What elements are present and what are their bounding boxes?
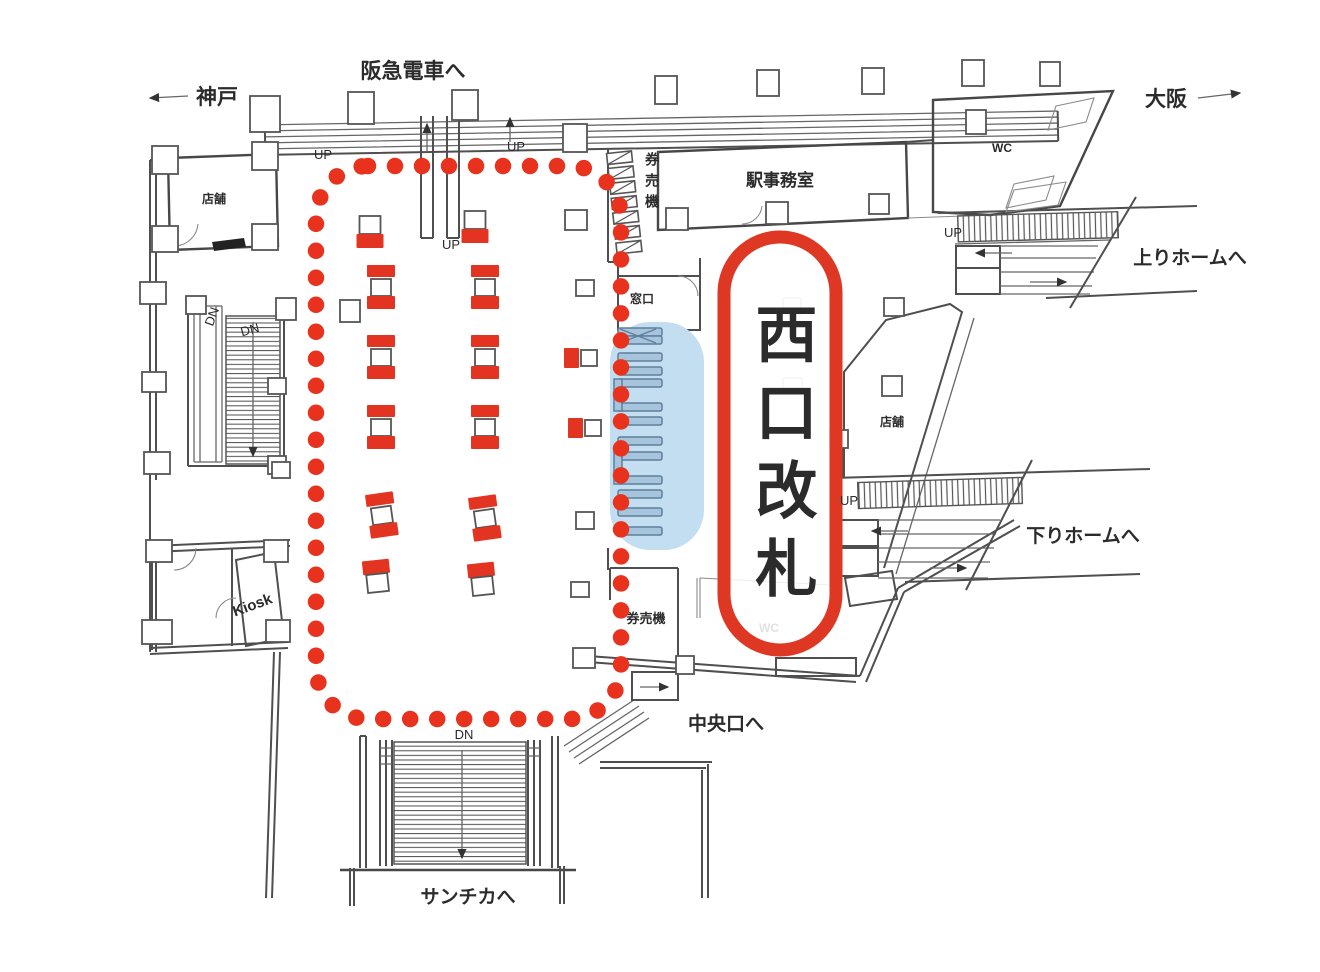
- wall-pillar: [862, 68, 884, 94]
- wall-pillar: [140, 282, 166, 304]
- station-office-label: 駅事務室: [745, 170, 814, 190]
- pillar-markers: [357, 211, 602, 596]
- red-pillar-marker: [471, 265, 499, 309]
- red-pillar-marker: [471, 405, 499, 449]
- red-pillar-marker: [367, 335, 395, 379]
- to-up-platform-label: 上りホームへ: [1133, 247, 1246, 269]
- ticket-machines-lower-label: 券売機: [625, 611, 665, 626]
- wall-pillar: [152, 226, 178, 252]
- direction-label: UP: [314, 147, 332, 162]
- up-platform-stairs: [938, 182, 1197, 308]
- shop-upper-left-label: 店舗: [202, 191, 226, 206]
- gate-bar: [618, 353, 662, 361]
- wall-pillar: [146, 540, 172, 562]
- red-pillar-marker: [362, 559, 392, 594]
- station-office-room: [658, 140, 990, 230]
- wall-pillar: [252, 224, 278, 250]
- red-pillar-marker: [468, 494, 502, 541]
- wall-pillar: [757, 70, 779, 96]
- direction-label: UP: [944, 225, 962, 240]
- to-central-exit-label: 中央口へ: [688, 712, 764, 735]
- west-gate-label: 西口改札: [746, 302, 818, 614]
- wall-pillar: [250, 96, 280, 132]
- wall-pillar: [573, 648, 595, 668]
- wall-pillar: [655, 76, 677, 104]
- direction-label: DN: [455, 727, 474, 742]
- floor-plan-svg: WC: [0, 0, 1320, 972]
- wall-pillar: [563, 124, 587, 152]
- wall-pillar: [966, 110, 986, 134]
- osaka-arrow-icon: [1198, 93, 1240, 98]
- wall-pillar: [340, 300, 360, 322]
- wall-pillar: [268, 378, 286, 394]
- santica-stairs: [340, 700, 712, 906]
- shop-door-mark: [212, 238, 246, 251]
- wall-pillar: [576, 512, 594, 529]
- shop-right-label: 店舗: [880, 414, 904, 429]
- upper-wc-room: [933, 91, 1113, 215]
- wall-pillar: [348, 92, 374, 124]
- wc-upper-label: WC: [992, 141, 1012, 155]
- west-gate-highlight: 西口改札: [724, 237, 836, 650]
- hankyu-corridor: [265, 111, 1058, 155]
- wall-pillar: [1040, 62, 1060, 86]
- kobe-arrow-icon: [150, 96, 188, 98]
- ticket-machines-top-label: 券売機: [644, 151, 660, 215]
- red-pillar-marker: [467, 562, 497, 597]
- direction-label: UP: [442, 237, 460, 252]
- red-pillar-marker: [357, 216, 384, 248]
- kobe-label: 神戸: [196, 85, 238, 109]
- wall-pillar: [666, 208, 688, 230]
- southwest-wall: [266, 652, 280, 898]
- wall-pillar: [144, 452, 170, 474]
- red-pillar-marker: [367, 405, 395, 449]
- wall-pillar: [142, 372, 166, 392]
- wall-pillar: [571, 582, 589, 597]
- wall-pillar: [452, 90, 478, 120]
- wall-pillar: [962, 60, 984, 86]
- to-down-platform-label: 下りホームへ: [1026, 526, 1139, 547]
- wall-pillar: [266, 620, 290, 642]
- red-pillar-marker: [365, 491, 399, 538]
- wall-pillar: [576, 280, 594, 296]
- dotted-highlight-region: [316, 166, 621, 719]
- wall-pillar: [676, 656, 694, 674]
- wall-pillar: [186, 296, 206, 314]
- wall-pillar: [272, 462, 290, 478]
- to-hankyu-label: 阪急電車へ: [361, 59, 466, 83]
- wall-pillar: [882, 376, 902, 396]
- down-platform-stairs: [832, 440, 1150, 590]
- gate-bar: [618, 379, 662, 387]
- ticket-gate-zone: [610, 322, 704, 550]
- wall-pillar: [152, 146, 178, 174]
- wall-pillar: [264, 540, 288, 562]
- direction-label: UP: [507, 139, 525, 154]
- wall-pillar: [142, 620, 172, 644]
- wall-pillar: [276, 298, 296, 320]
- station-floor-plan: WC: [0, 0, 1320, 972]
- ticket-window-label: 窓口: [630, 291, 654, 306]
- red-pillar-marker: [462, 211, 489, 243]
- red-pillar-marker: [367, 265, 395, 309]
- red-pillar-marker: [568, 418, 601, 438]
- wall-pillar: [884, 298, 904, 316]
- wall-pillar: [766, 202, 788, 224]
- kiosk-label: Kiosk: [230, 590, 275, 620]
- wall-pillar: [252, 142, 278, 170]
- direction-label: UP: [840, 493, 858, 508]
- to-santica-label: サンチカへ: [420, 886, 515, 908]
- red-pillar-marker: [564, 348, 597, 368]
- wall-pillar: [565, 210, 587, 230]
- wall-pillar: [869, 194, 889, 214]
- gate-bar: [618, 403, 662, 411]
- red-pillar-marker: [471, 335, 499, 379]
- osaka-label: 大阪: [1145, 88, 1188, 111]
